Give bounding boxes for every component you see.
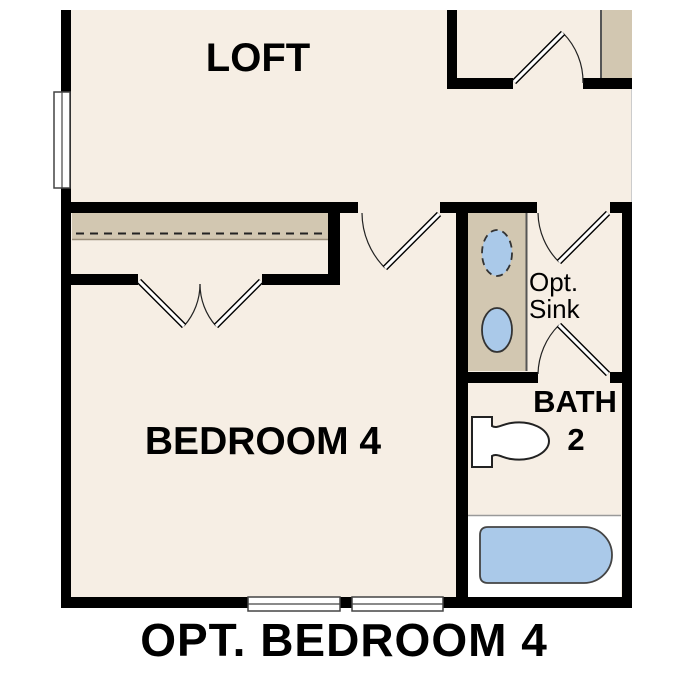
wall-bottom [61,597,632,608]
wall-loft-divider [447,10,457,88]
opt-sink-label-line1: Opt. [529,267,578,297]
window-bottom-right [352,597,443,611]
wall-closet-front-right [262,274,340,285]
wall-closet-front-left [61,274,138,285]
wall-top-room-a [447,78,513,89]
sink-basin [482,308,512,352]
wall-bedroom-bath-divider [456,202,468,608]
wall-right [622,202,632,608]
loft-label: LOFT [206,36,310,80]
wall-closet-right [328,202,340,285]
floorplan-canvas: LOFT BEDROOM 4 BATH 2 Opt. Sink OPT. BED… [0,0,687,687]
wall-top-room-b [583,78,632,89]
opt-sink-label-line2: Sink [529,294,581,324]
bedroom-label: BEDROOM 4 [145,420,382,463]
bathtub [480,527,612,583]
floorplan-svg: LOFT BEDROOM 4 BATH 2 Opt. Sink OPT. BED… [0,0,687,687]
bath-label-line1: BATH [533,384,617,419]
window-left [54,92,70,188]
wall-closet-top [61,202,358,213]
plan-caption: OPT. BEDROOM 4 [140,614,548,666]
wall-hall-top [440,202,537,213]
stair-area [602,10,632,78]
optional-sink-basin [482,230,512,276]
closet-shelf [72,213,328,240]
wall-bath-divider-left [456,372,538,383]
bath-label-line2: 2 [567,422,584,457]
window-bottom-left [248,597,340,611]
